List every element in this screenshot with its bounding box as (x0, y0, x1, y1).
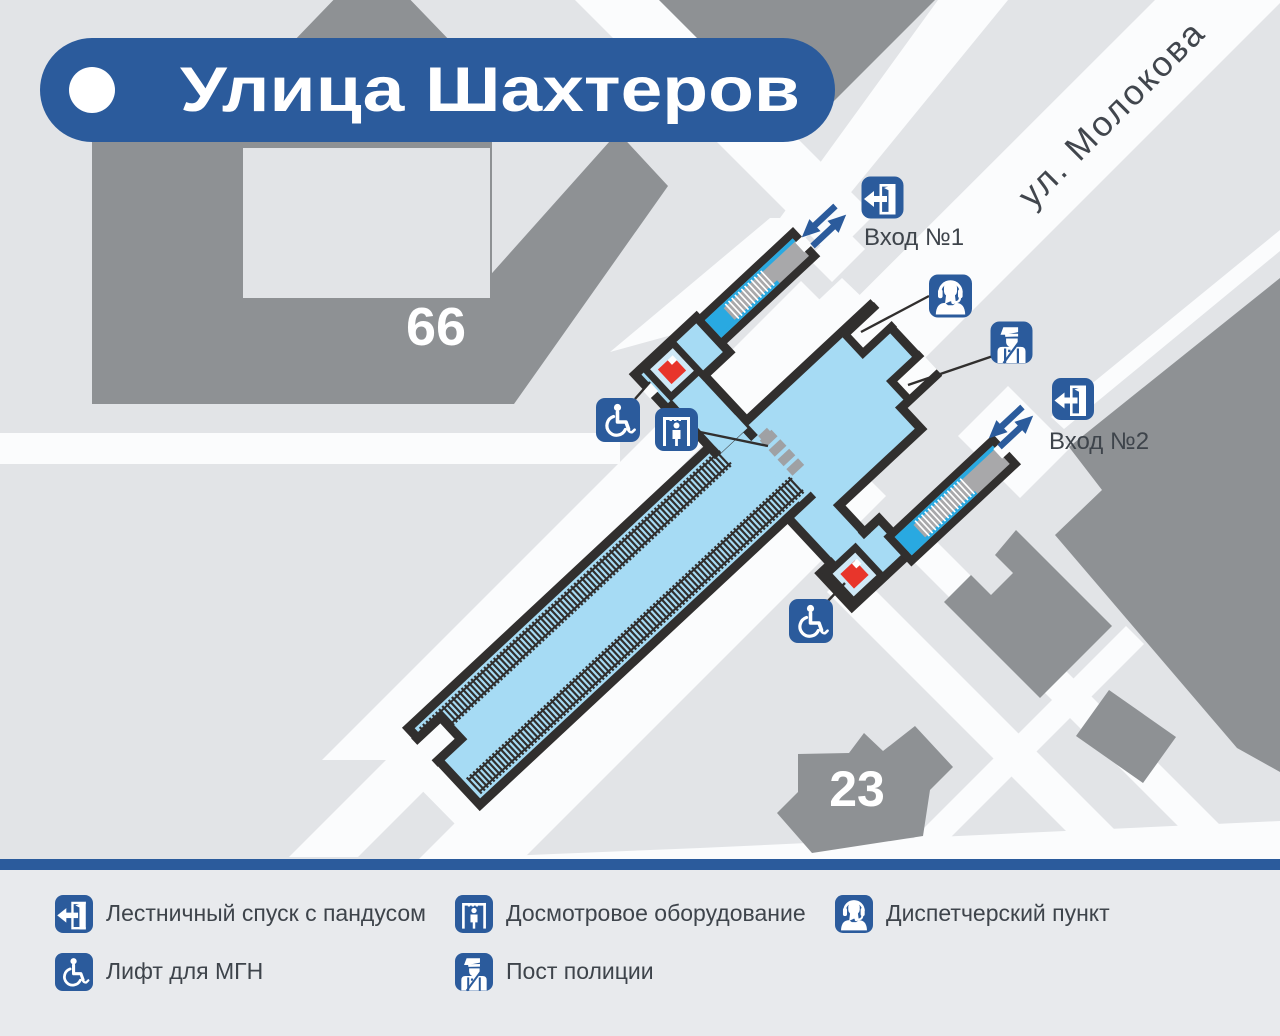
svg-text:Вход №2: Вход №2 (1049, 428, 1149, 455)
svg-text:66: 66 (406, 297, 466, 357)
svg-text:Диспетчерский пункт: Диспетчерский пункт (886, 900, 1110, 926)
svg-text:Лифт для МГН: Лифт для МГН (106, 958, 263, 984)
svg-text:Вход №1: Вход №1 (864, 224, 964, 251)
svg-text:Лестничный спуск с пандусом: Лестничный спуск с пандусом (106, 900, 426, 926)
svg-text:23: 23 (829, 761, 885, 817)
svg-text:Улица Шахтеров: Улица Шахтеров (180, 55, 800, 125)
svg-text:Пост полиции: Пост полиции (506, 958, 654, 984)
svg-text:Досмотровое оборудование: Досмотровое оборудование (506, 900, 806, 926)
